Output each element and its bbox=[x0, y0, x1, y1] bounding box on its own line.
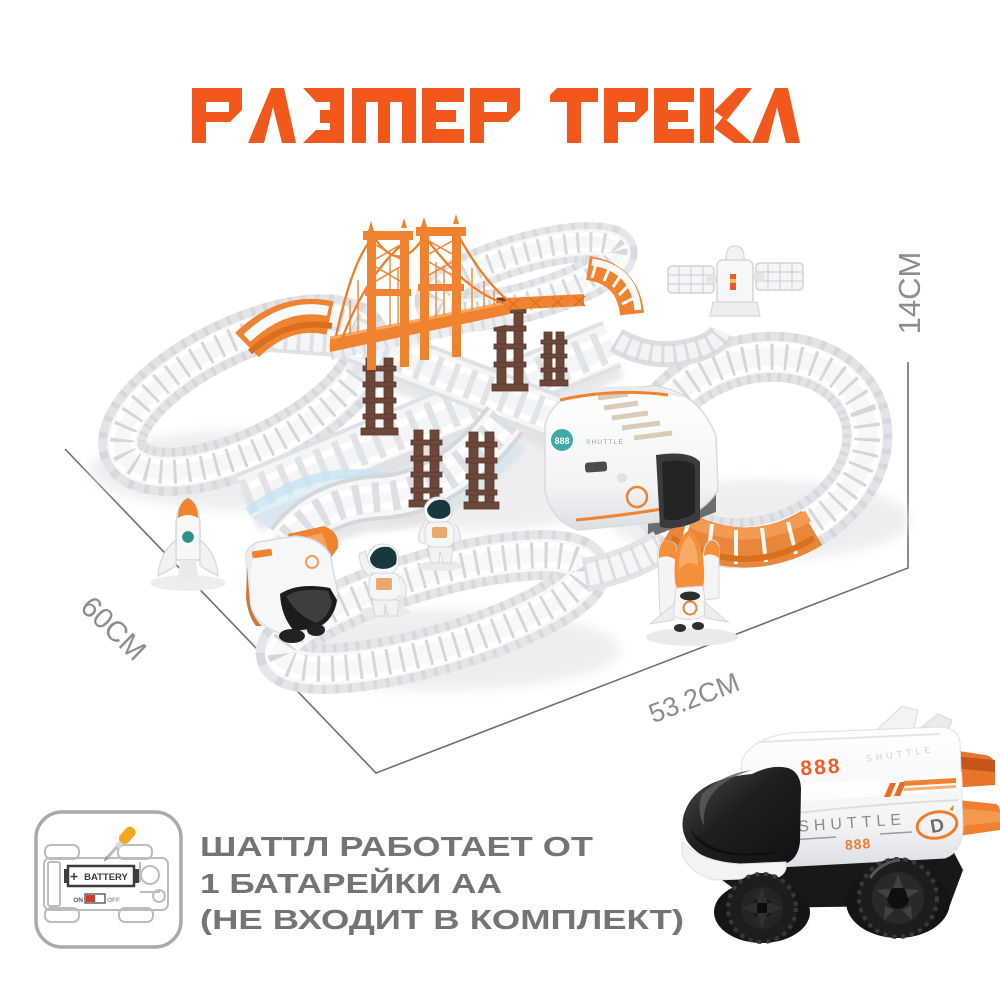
svg-text:60CM: 60CM bbox=[74, 591, 152, 668]
svg-text:14CM: 14CM bbox=[892, 252, 927, 335]
svg-text:OFF: OFF bbox=[107, 897, 120, 904]
svg-text:1 БАТАРЕЙКИ АА: 1 БАТАРЕЙКИ АА bbox=[200, 868, 502, 899]
svg-text:888: 888 bbox=[554, 436, 569, 446]
svg-text:SHUTTLE: SHUTTLE bbox=[586, 439, 624, 446]
svg-text:(НЕ ВХОДИТ В КОМПЛЕКТ): (НЕ ВХОДИТ В КОМПЛЕКТ) bbox=[200, 904, 684, 935]
svg-text:888: 888 bbox=[844, 835, 871, 853]
svg-text:53.2CM: 53.2CM bbox=[644, 667, 743, 729]
svg-text:ШАТТЛ РАБОТАЕТ ОТ: ШАТТЛ РАБОТАЕТ ОТ bbox=[200, 831, 593, 862]
svg-text:BATTERY: BATTERY bbox=[84, 872, 128, 883]
svg-text:ON: ON bbox=[73, 897, 83, 904]
svg-text:888: 888 bbox=[800, 755, 843, 781]
